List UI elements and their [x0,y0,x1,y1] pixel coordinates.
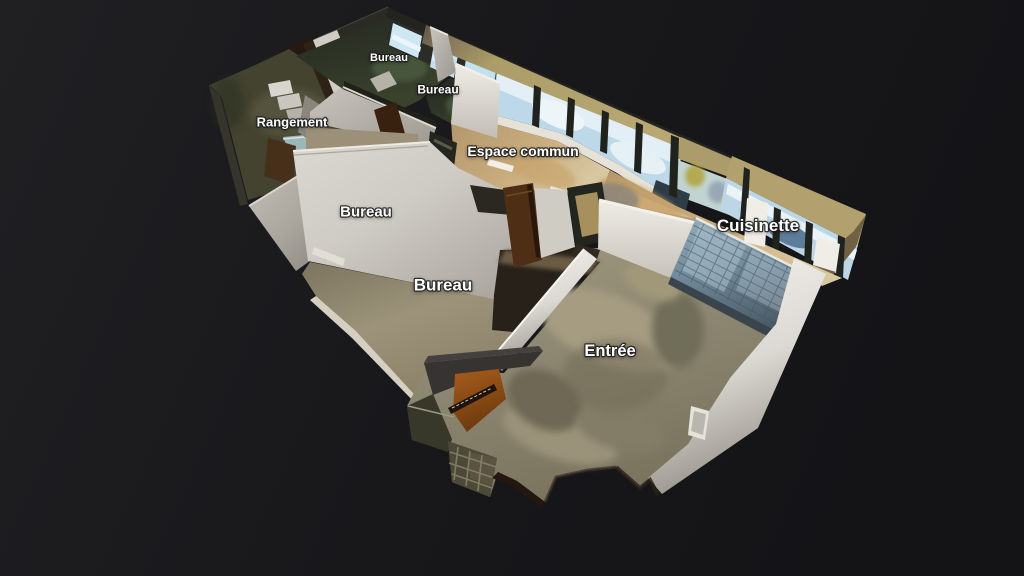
svg-text:Rangement: Rangement [257,115,328,130]
svg-text:Bureau: Bureau [370,52,408,64]
svg-text:Entrée: Entrée [584,342,635,360]
svg-text:Espace commun: Espace commun [467,143,578,159]
svg-text:Cuisinette: Cuisinette [717,216,799,235]
svg-text:Bureau: Bureau [417,83,458,97]
svg-text:Bureau: Bureau [414,276,473,295]
svg-text:Bureau: Bureau [340,204,392,221]
